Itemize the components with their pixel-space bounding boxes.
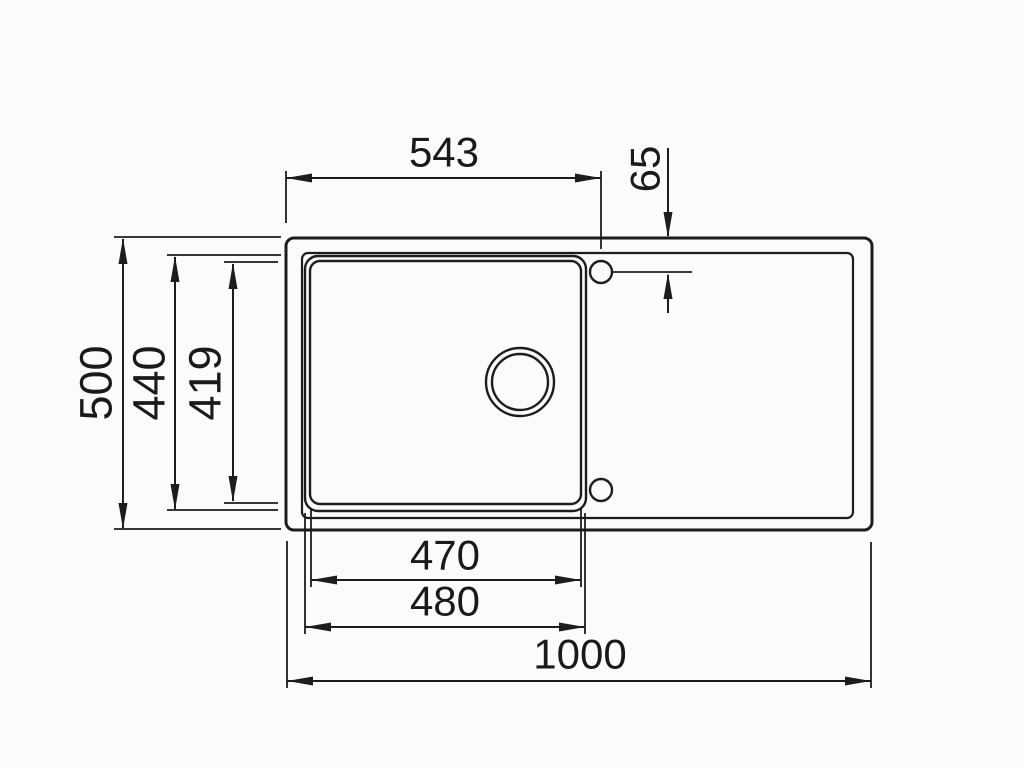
dim-label-overall-width: 1000 [533, 631, 626, 678]
dim-470-arrow-right [555, 576, 581, 585]
dimension-419: 419 [180, 262, 279, 503]
sink-drawing: 543 65 500 440 [0, 0, 1024, 768]
dim-480-arrow-left [305, 623, 331, 632]
dim-1000-arrow-left [287, 677, 313, 686]
dim-543-arrow-left [286, 174, 312, 183]
dim-label-bowl-outer-depth: 440 [124, 345, 175, 420]
dim-label-bowl-inner-depth: 419 [180, 345, 231, 420]
dim-440-arrow-bottom [171, 484, 180, 510]
dimension-1000: 1000 [287, 541, 871, 688]
dimension-470: 470 [311, 508, 581, 587]
tap-hole-top [590, 261, 612, 283]
sink-body [286, 238, 872, 530]
dimension-543: 543 [286, 129, 601, 250]
tap-hole-bottom [590, 479, 612, 501]
dim-1000-arrow-right [845, 677, 871, 686]
dim-500-arrow-bottom [119, 503, 128, 529]
sink-outer-outline [286, 238, 872, 530]
dim-470-arrow-left [311, 576, 337, 585]
dim-65-arrow-down [664, 212, 673, 238]
dim-65-arrow-up [664, 273, 673, 299]
dim-label-overall-depth: 500 [71, 345, 122, 420]
dimension-65: 65 [612, 146, 692, 313]
drain-inner-circle [492, 354, 548, 410]
dim-419-arrow-bottom [229, 476, 238, 502]
dim-419-arrow-top [229, 263, 238, 289]
technical-drawing-canvas: 543 65 500 440 [0, 0, 1024, 768]
dim-label-bowl-outer-width: 480 [410, 578, 480, 625]
dim-500-arrow-top [119, 238, 128, 264]
bowl-inner-edge [310, 261, 581, 504]
drain-outer-circle [486, 348, 554, 416]
dim-label-tap-hole-from-top: 65 [622, 146, 669, 193]
sink-inner-rim [302, 253, 853, 518]
bowl-outer-edge [305, 256, 586, 511]
dim-label-bowl-inner-width: 470 [410, 532, 480, 579]
dim-label-tap-hole-from-left: 543 [409, 129, 479, 176]
dim-440-arrow-top [171, 256, 180, 282]
dim-543-arrow-right [575, 174, 601, 183]
